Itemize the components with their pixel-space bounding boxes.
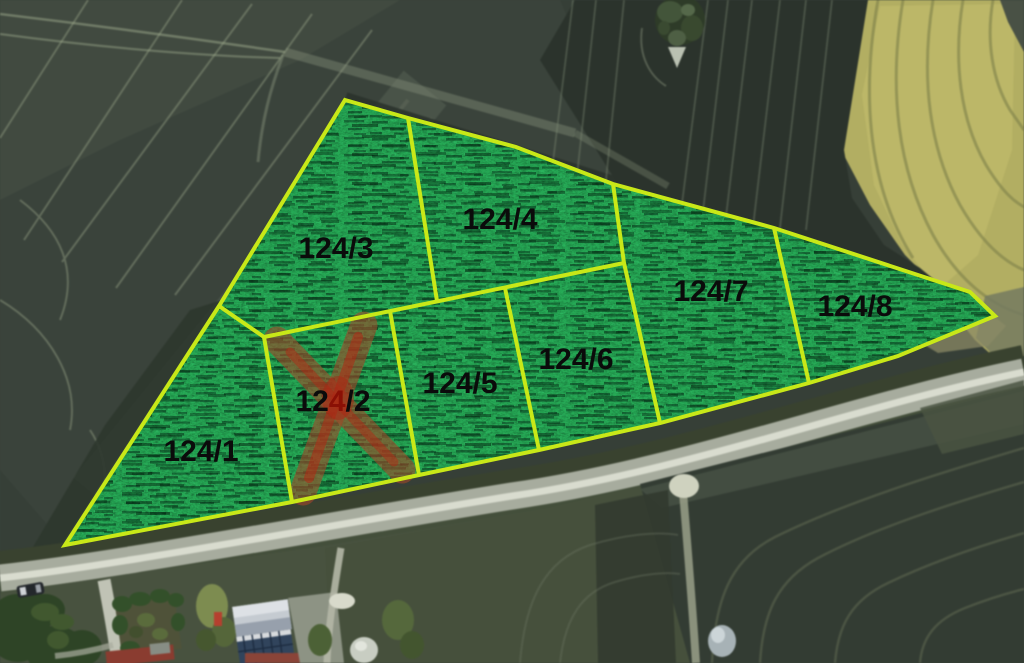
svg-text:124/5: 124/5 [422, 367, 497, 400]
svg-text:124/4: 124/4 [462, 203, 537, 236]
svg-text:124/6: 124/6 [538, 343, 613, 376]
svg-text:124/1: 124/1 [163, 435, 238, 468]
svg-text:124/3: 124/3 [298, 232, 373, 265]
svg-text:124/7: 124/7 [673, 275, 748, 308]
svg-text:124/8: 124/8 [817, 290, 892, 323]
svg-text:124/2: 124/2 [295, 385, 370, 418]
